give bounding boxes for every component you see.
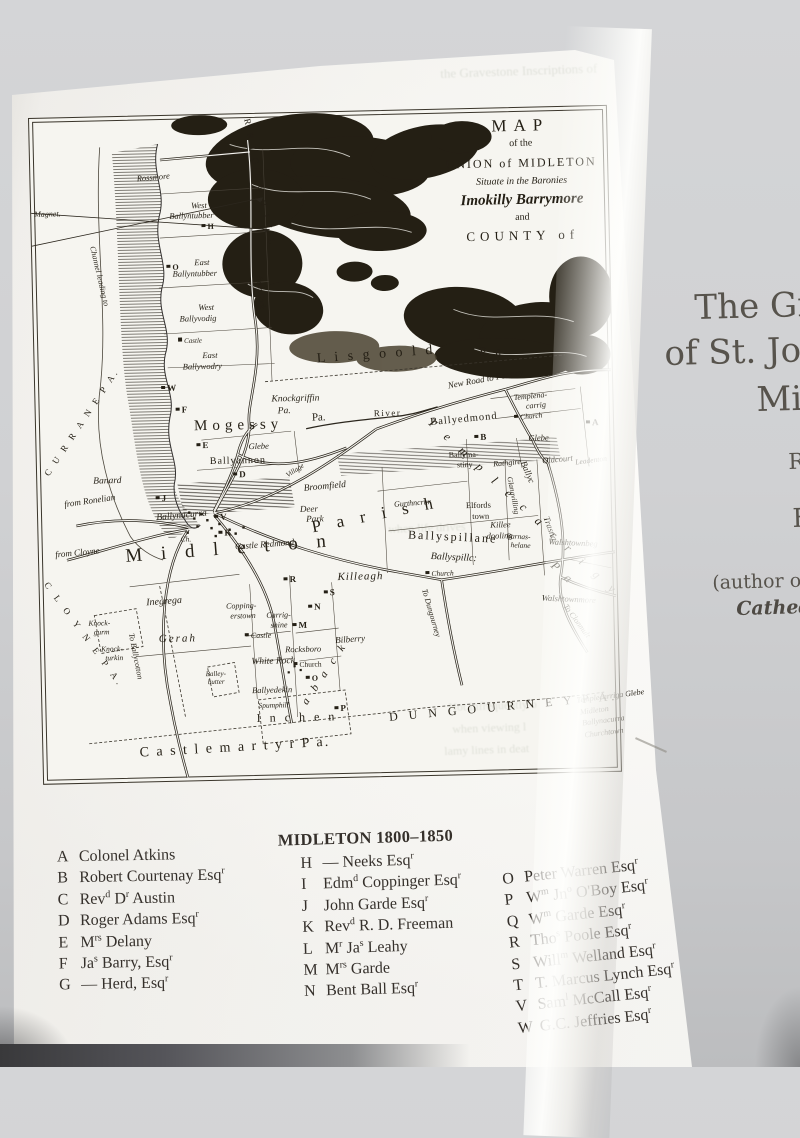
map-label: Magnet. [34, 210, 61, 219]
legend-name: Roger Adams Esqr [80, 908, 199, 931]
legend-letter: A [57, 846, 79, 868]
midleton-union-map: MAP of the UNION of MIDLETON Situate in … [28, 105, 622, 785]
legend-header: MIDLETON 1800–1850 [278, 825, 461, 850]
legend-row: EMrs Delany [58, 929, 226, 953]
map-label: gurm [94, 628, 110, 636]
legend-name: — Neeks Esqr [322, 850, 414, 874]
legend-letter: V [515, 994, 539, 1018]
map-label: Church [293, 660, 321, 668]
map-label: Gerah [159, 633, 197, 645]
map-label: Ballyedekin [252, 685, 292, 694]
right-page-line: R [788, 450, 800, 475]
legend-letter: K [302, 917, 325, 939]
map-label: E [196, 441, 208, 450]
legend-letter: J [301, 895, 324, 917]
map-label: Deer [300, 505, 318, 514]
map-label: turkin [105, 654, 123, 662]
map-label: helane [510, 541, 530, 549]
map-label: Ballyvodig [179, 314, 216, 323]
map-title-line: and [439, 210, 605, 225]
legend-name: — Herd, Esqr [81, 973, 169, 996]
legend-letter: N [304, 981, 327, 1003]
legend-letter: I [301, 874, 324, 896]
map-label: butter [208, 679, 225, 686]
map-label: V [214, 513, 227, 522]
legend-row: IEdmd Coppinger Esqr [301, 870, 462, 896]
map-label: Castle [245, 632, 272, 641]
map-label: I n c h e n [257, 710, 338, 724]
map-label: Killeagh [337, 571, 383, 583]
legend-letter: Q [506, 909, 530, 933]
right-page-line: Cathedr [736, 596, 800, 620]
right-page-line: (author of [712, 569, 800, 594]
map-label: Spumphill [258, 701, 289, 709]
legend-letter: L [303, 938, 326, 960]
legend-row: BRobert Courtenay Esqr [57, 865, 225, 889]
legend-name: John Garde Esqr [323, 892, 428, 916]
map-title-line: MAP [437, 114, 603, 138]
map-label: M [292, 621, 307, 630]
map-label: Walshtownbeg [548, 537, 598, 548]
right-page-line: F [792, 504, 800, 534]
map-label: Ballyannon [210, 456, 266, 467]
legend-column-2: MIDLETON 1800–1850 H— Neeks EsqrIEdmd Co… [278, 825, 465, 1003]
map-label: K [218, 528, 231, 537]
map-label: West [198, 303, 214, 312]
legend-column-1: AColonel AtkinsBRobert Courtenay EsqrCRe… [57, 844, 227, 997]
map-label: Knock- [101, 645, 123, 653]
map-label: P [334, 704, 346, 713]
map-label: River [374, 409, 402, 419]
legend-row: FJas Barry, Esqr [59, 951, 227, 975]
map-label: S [324, 588, 335, 597]
legend-row: KRevd R. D. Freeman [302, 913, 463, 939]
map-label: W [161, 384, 176, 393]
map-label: town [472, 512, 489, 521]
legend-letter: G [59, 975, 81, 997]
right-page-line: Mic [756, 378, 800, 420]
right-page-line: of St. John [664, 329, 800, 374]
map-label: Elfords [466, 501, 491, 510]
map-label: Pa. [312, 412, 326, 423]
legend-letter: E [58, 932, 80, 954]
map-label: Pa. [278, 407, 291, 417]
legend-letter: F [59, 953, 81, 975]
legend-name: Jas Barry, Esqr [81, 952, 173, 975]
map-label: shine [270, 621, 287, 629]
legend-letter: M [303, 959, 326, 981]
legend-letter: O [501, 867, 525, 891]
right-page-line: The Grav [694, 284, 800, 328]
map-label: erstown [230, 612, 256, 621]
legend-name: Bent Ball Esqr [326, 978, 419, 1002]
legend-row: G— Herd, Esqr [59, 972, 227, 996]
map-label: J [156, 494, 167, 503]
legend-row: CRevd Dr Austin [57, 886, 225, 910]
legend-letter: H [300, 852, 323, 874]
map-label: N [308, 602, 321, 611]
map-title-line: UNION of MIDLETON [438, 154, 604, 173]
legend-name: Robert Courtenay Esqr [79, 865, 225, 889]
map-label: Knock- [88, 619, 110, 627]
legend-letter: D [58, 910, 80, 932]
legend-name: Revd Dr Austin [79, 887, 175, 910]
legend-letter: T [512, 973, 536, 997]
map-label: Ballyntubber [172, 269, 217, 279]
map-title: MAP of the UNION of MIDLETON Situate in … [437, 114, 606, 246]
map-label: O [306, 675, 318, 683]
map-label: Glebe [528, 433, 548, 442]
legend-row: AColonel Atkins [57, 844, 225, 868]
map-label: Ballyspillc: [430, 552, 477, 564]
map-label: Ballyntubber [169, 211, 214, 221]
map-label: East [202, 351, 217, 360]
map-label: Church [425, 569, 453, 577]
table-edge-strip [0, 1044, 470, 1067]
map-label: White Rock [251, 657, 295, 667]
legend-row: NBent Ball Esqr [304, 977, 465, 1003]
map-label: R [283, 575, 296, 584]
map-label: Copping- [226, 602, 256, 611]
map-label: F [176, 405, 188, 414]
map-label: Ballywodry [183, 362, 222, 371]
map-label: West [191, 201, 207, 210]
legend-name: Mr Jas Leahy [325, 936, 408, 960]
map-label: Knockgriffin [271, 394, 319, 405]
legend-name: Mrs Garde [325, 958, 390, 981]
map-label: Banard [93, 477, 121, 487]
legend-letter: P [503, 888, 527, 912]
legend-letter: B [57, 867, 79, 889]
legend-letter: S [510, 952, 534, 976]
legend-letter: R [508, 931, 532, 955]
map-label: Killee [490, 520, 511, 529]
legend-letter: C [57, 889, 79, 911]
map-label: Castle [178, 337, 202, 345]
map-label: H [201, 223, 213, 231]
map-label: East [194, 258, 209, 267]
legend-name: Revd R. D. Freeman [324, 913, 453, 938]
legend-row: DRoger Adams Esqr [58, 908, 226, 932]
map-label: D [233, 470, 246, 479]
map-label: Glebe [248, 442, 268, 451]
legend-letter: W [517, 1016, 541, 1040]
map-label: P a [479, 344, 504, 358]
map-label: B [474, 433, 486, 442]
map-label: A [586, 418, 599, 427]
legend-name: Mrs Delany [80, 930, 152, 953]
map-label: Park [306, 514, 324, 523]
map-label: Mogessy [194, 417, 283, 434]
legend-name: Edmd Coppinger Esqr [323, 870, 462, 895]
map-title-line: of the [438, 136, 604, 151]
map-label: Rocksboro [285, 644, 321, 653]
map-title-line: Situate in the Baronies [438, 174, 604, 189]
map-label: Carrig- [266, 611, 291, 620]
bleed-line: the Gravestone Inscriptions of [440, 61, 598, 82]
map-title-line: Imokilly Barrymore [439, 190, 605, 211]
legend-name: Colonel Atkins [79, 844, 176, 867]
